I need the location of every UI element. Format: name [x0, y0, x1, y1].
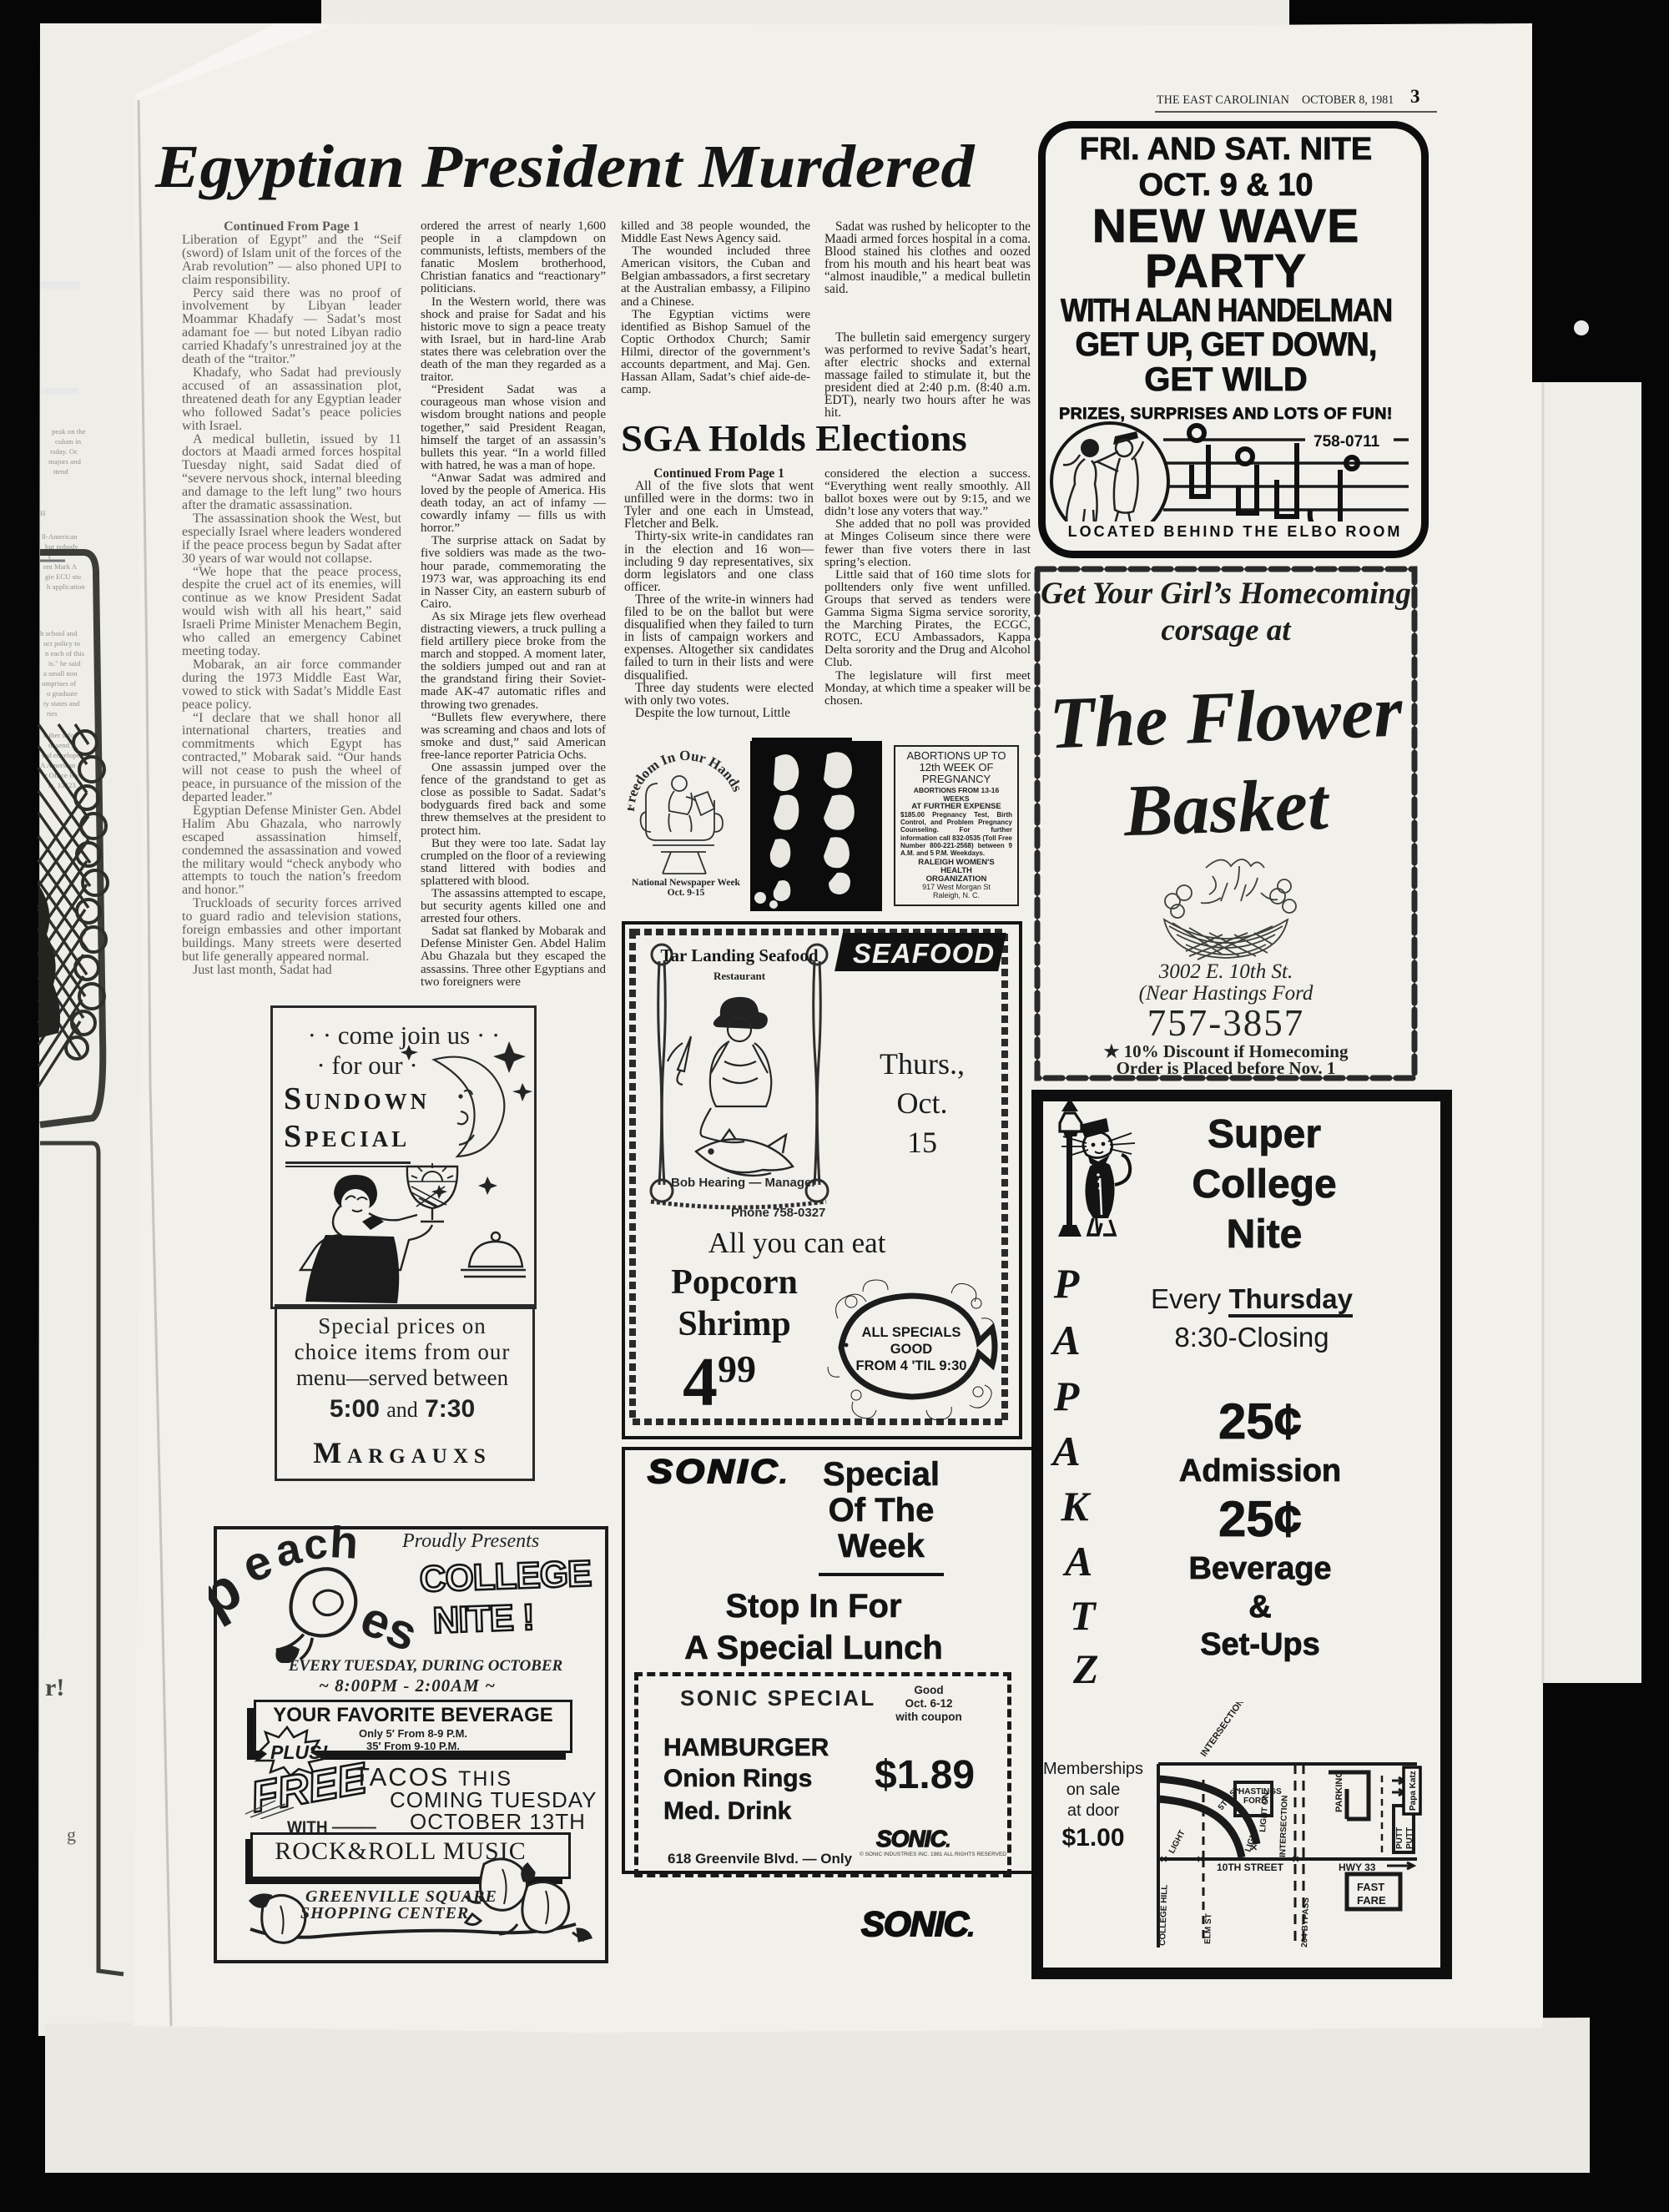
svg-text:peak on the: peak on the: [52, 427, 86, 436]
svg-text:h: h: [329, 1525, 360, 1569]
svg-text:COLLEGE HILL: COLLEGE HILL: [1158, 1884, 1170, 1946]
svg-text:majors and: majors and: [48, 457, 81, 466]
svg-text:es: es: [353, 1590, 417, 1662]
svg-text:ries: ries: [47, 709, 58, 718]
svg-text:✕: ✕: [1160, 1855, 1167, 1865]
svg-text:ttend: ttend: [53, 467, 68, 476]
svg-text:uct policy to: uct policy to: [43, 639, 81, 647]
svg-text:e: e: [234, 1534, 280, 1594]
svg-text:PARKING: PARKING: [1334, 1771, 1344, 1812]
svg-text:HASTINGS: HASTINGS: [1238, 1787, 1282, 1796]
svg-text:Restaurant: Restaurant: [713, 970, 766, 982]
svg-text:National Newspaper Week: National Newspaper Week: [632, 878, 741, 888]
svg-text:NITE !: NITE !: [432, 1597, 535, 1641]
svg-text:gie ECU stu: gie ECU stu: [45, 572, 82, 581]
svg-text:omprises of: omprises of: [42, 679, 76, 688]
svg-text:r!: r!: [45, 1674, 64, 1701]
svg-text:rsday. Oc: rsday. Oc: [50, 447, 78, 456]
svg-text:FROM 4 'TIL 9:30: FROM 4 'TIL 9:30: [856, 1358, 967, 1373]
svg-text:ty states and: ty states and: [43, 699, 80, 708]
svg-text:INTERSECTION: INTERSECTION: [1278, 1795, 1290, 1857]
svg-text:LOCATED BEHIND THE ELBO ROOM: LOCATED BEHIND THE ELBO ROOM: [1068, 523, 1403, 540]
svg-text:ent Mark A: ent Mark A: [43, 562, 78, 571]
svg-text:Papa Katz: Papa Katz: [1409, 1771, 1418, 1811]
svg-text:is." he said: is." he said: [48, 659, 81, 668]
svg-text:h school and: h school and: [40, 629, 78, 637]
svg-text:GOOD: GOOD: [890, 1342, 933, 1357]
svg-text:a: a: [271, 1525, 306, 1577]
svg-text:c: c: [302, 1525, 329, 1569]
svg-text:h application: h application: [47, 582, 85, 591]
svg-text:INTERSECTION: INTERSECTION: [1199, 1702, 1247, 1759]
svg-text:Oct. 9-15: Oct. 9-15: [668, 888, 705, 898]
svg-text:FAST: FAST: [1357, 1881, 1384, 1893]
svg-text:PUTT: PUTT: [1405, 1827, 1414, 1849]
svg-text:✕: ✕: [1197, 1855, 1204, 1865]
svg-text:ELM ST: ELM ST: [1203, 1913, 1213, 1944]
svg-text:LIGHT: LIGHT: [1167, 1829, 1187, 1856]
svg-text:culum in: culum in: [55, 437, 82, 446]
svg-text:10TH STREET: 10TH STREET: [1217, 1862, 1284, 1873]
svg-text:PUTT: PUTT: [1395, 1827, 1404, 1849]
svg-text:a small non: a small non: [43, 669, 78, 678]
svg-text:COLLEGE: COLLEGE: [419, 1554, 592, 1600]
svg-text:ll-American: ll-American: [42, 532, 78, 541]
svg-text:264 BYPASS: 264 BYPASS: [1300, 1897, 1311, 1948]
svg-text:FARE: FARE: [1357, 1894, 1386, 1907]
svg-text:758-0711: 758-0711: [1314, 433, 1380, 451]
svg-text:FREE: FREE: [248, 1754, 371, 1819]
svg-text:n each of this: n each of this: [45, 649, 85, 658]
svg-text:HWY 33: HWY 33: [1339, 1862, 1376, 1873]
svg-text:ALL SPECIALS: ALL SPECIALS: [862, 1325, 961, 1340]
svg-text:✕: ✕: [1292, 1855, 1299, 1865]
svg-text:Tar Landing Seafood: Tar Landing Seafood: [660, 945, 818, 965]
svg-text:o graduate: o graduate: [47, 689, 78, 698]
svg-text:H: H: [40, 509, 46, 517]
svg-text:✕: ✕: [1250, 1843, 1258, 1853]
svg-text:Phone 758-0327: Phone 758-0327: [731, 1206, 825, 1220]
svg-text:g: g: [67, 1824, 76, 1845]
svg-text:Bob Hearing — Manager: Bob Hearing — Manager: [671, 1176, 816, 1190]
